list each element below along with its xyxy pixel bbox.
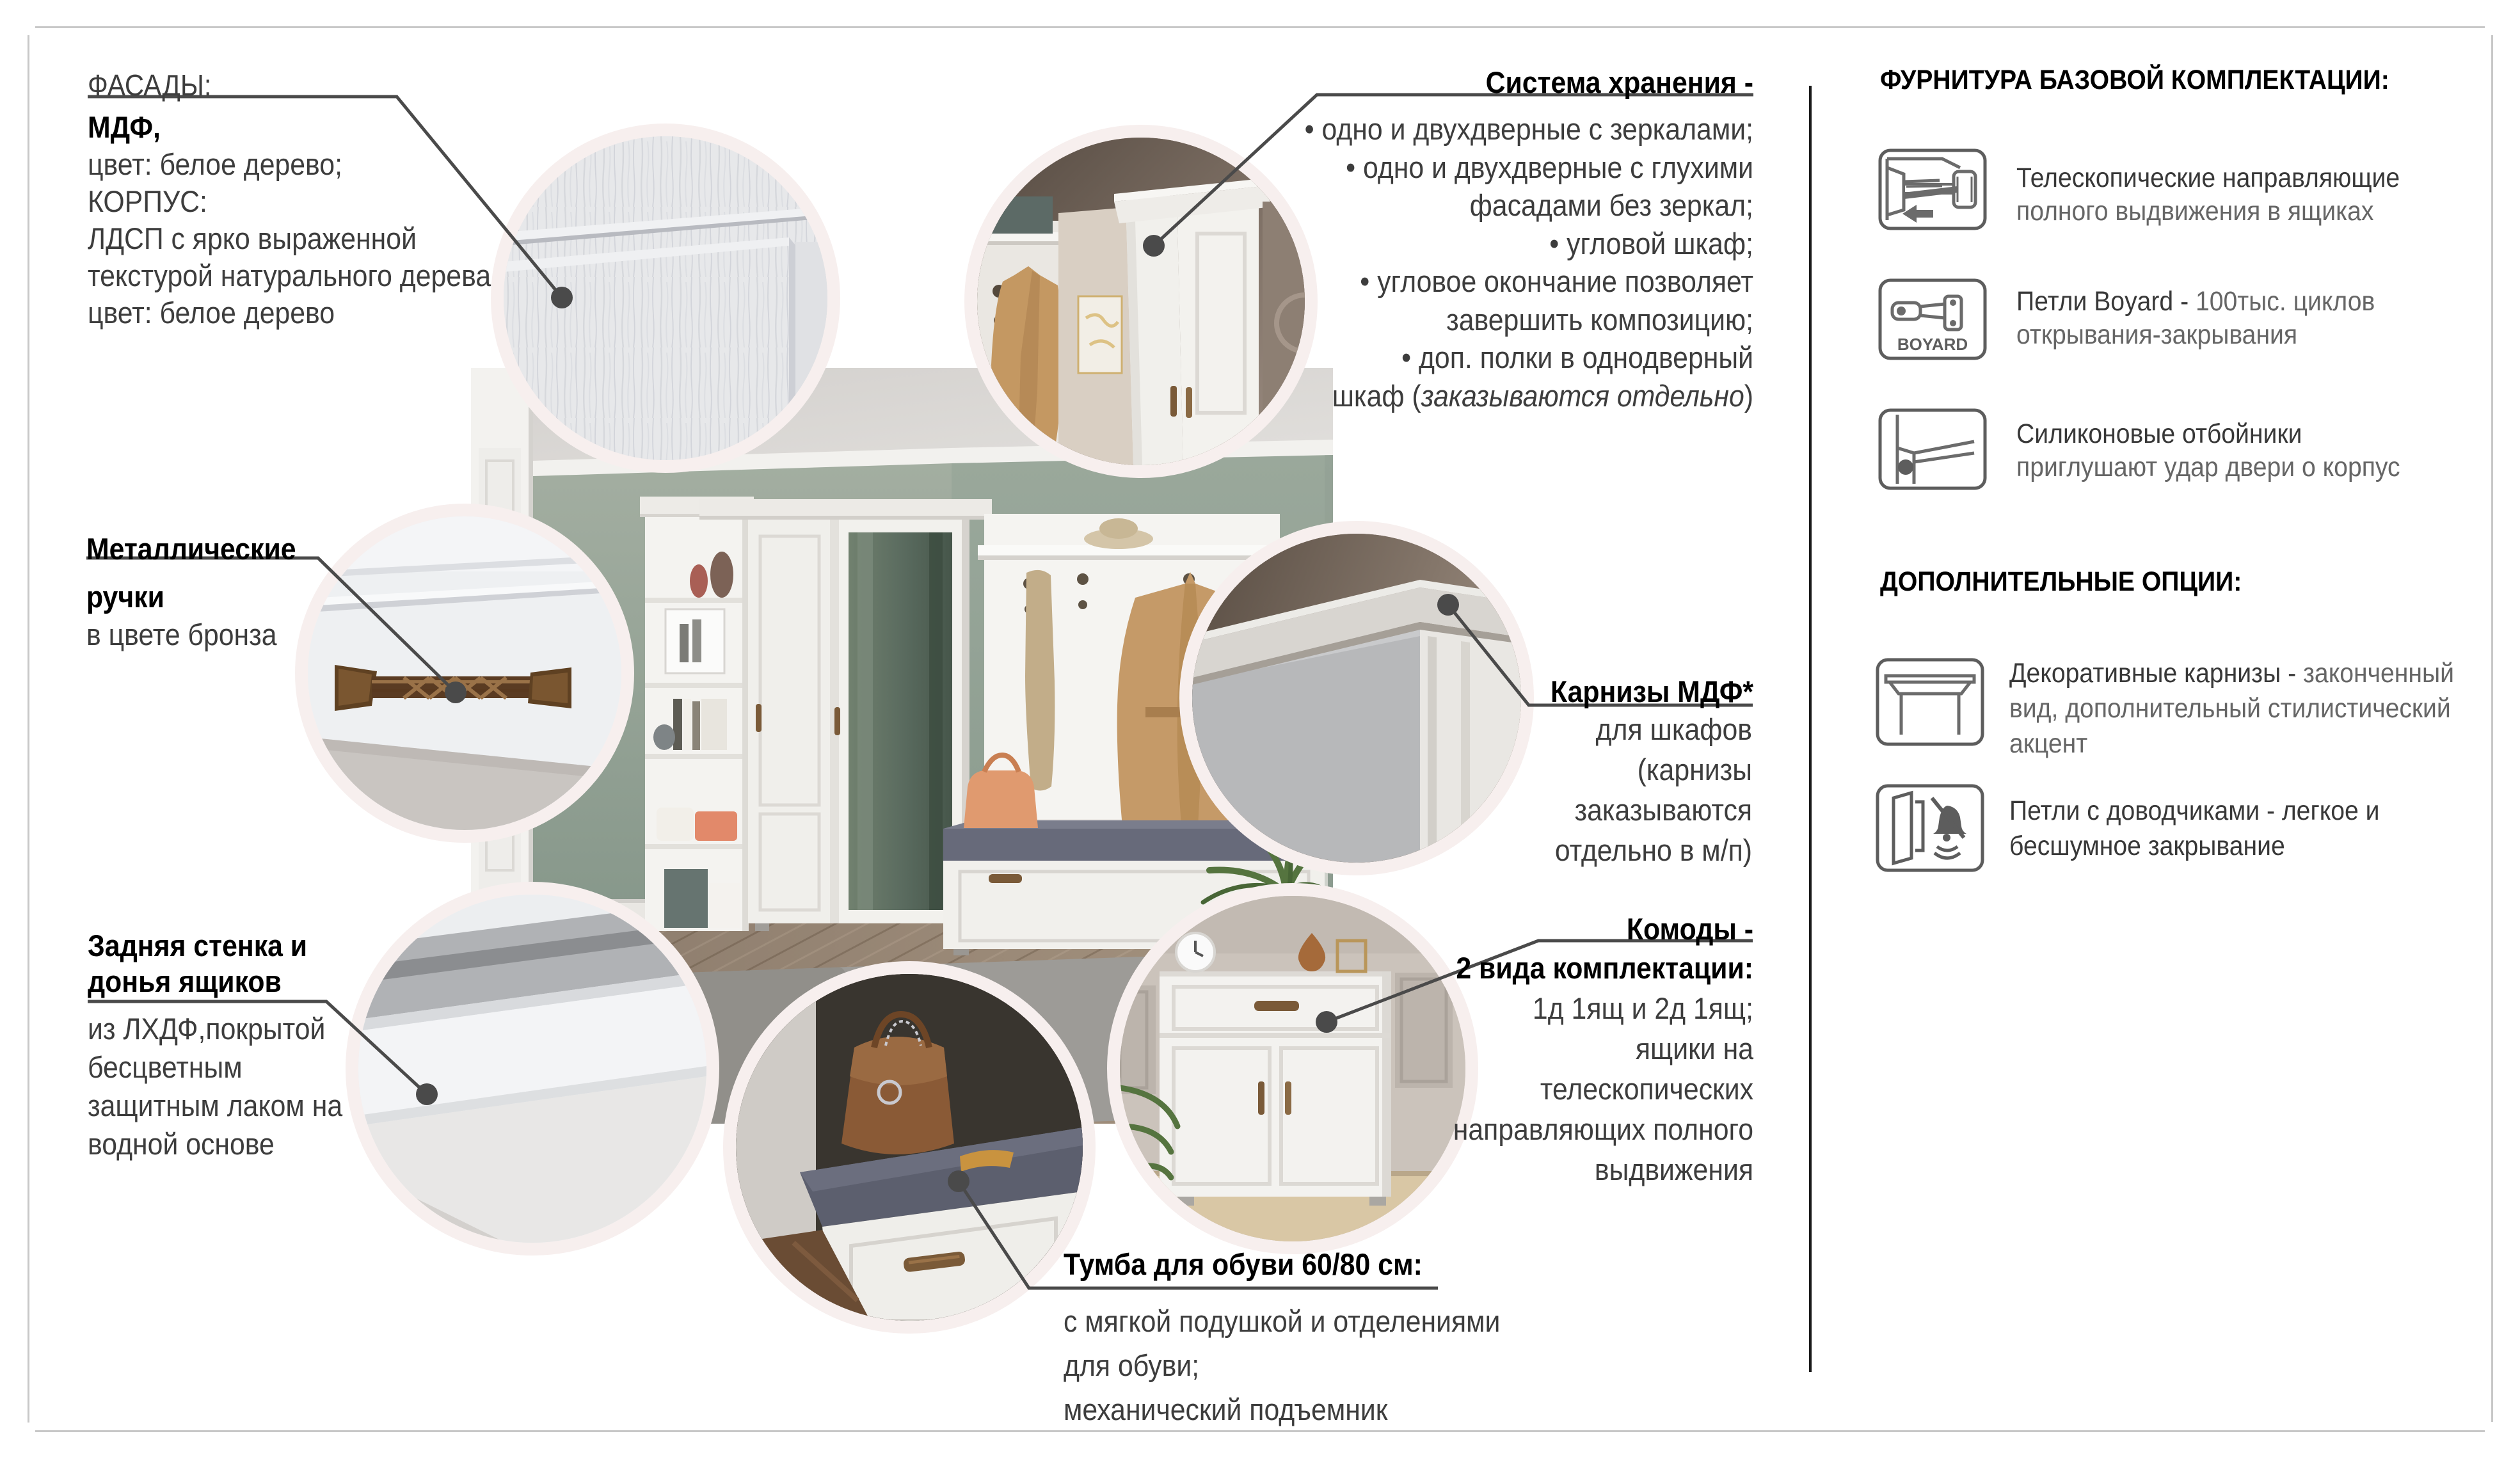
svg-text:BOYARD: BOYARD <box>1897 335 1968 354</box>
